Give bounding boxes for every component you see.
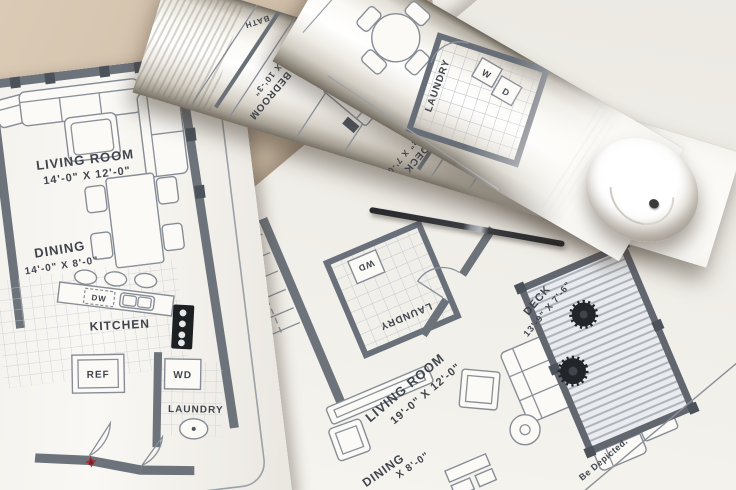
laundry-walls [327,224,458,355]
window-post [44,70,56,84]
rolled-paper-spiral [596,146,687,238]
window-post [99,64,111,78]
dining-chair [84,185,107,213]
stove-icon [171,304,194,349]
wall [34,447,91,472]
wall [87,450,143,481]
dishwasher-label: DW [91,293,107,304]
window-post [185,127,197,141]
window-post [194,185,206,199]
deck-boards [522,246,692,451]
dining-chair [156,176,179,204]
refrigerator: REF [72,354,125,393]
window-post [9,74,21,88]
dining-chair [162,223,185,251]
washer-dryer-label: WD [173,370,192,381]
interior-door-arc [139,437,166,466]
accent-table [459,369,500,410]
laundry-room: WD LAUNDRY [327,224,458,355]
entry-door-arc [86,423,114,456]
laundry-sink [180,419,208,439]
refrigerator-label: REF [87,370,110,381]
dining-table [84,170,186,271]
coffee-table [328,418,372,462]
kitchen-fixtures [445,454,496,490]
wall [152,352,162,447]
laundry-label: LAUNDRY [168,404,224,416]
blueprint-photo-stage: 16'-0" X 12'-0" BED [0,0,736,490]
washer-dryer-box: WD [164,359,201,390]
